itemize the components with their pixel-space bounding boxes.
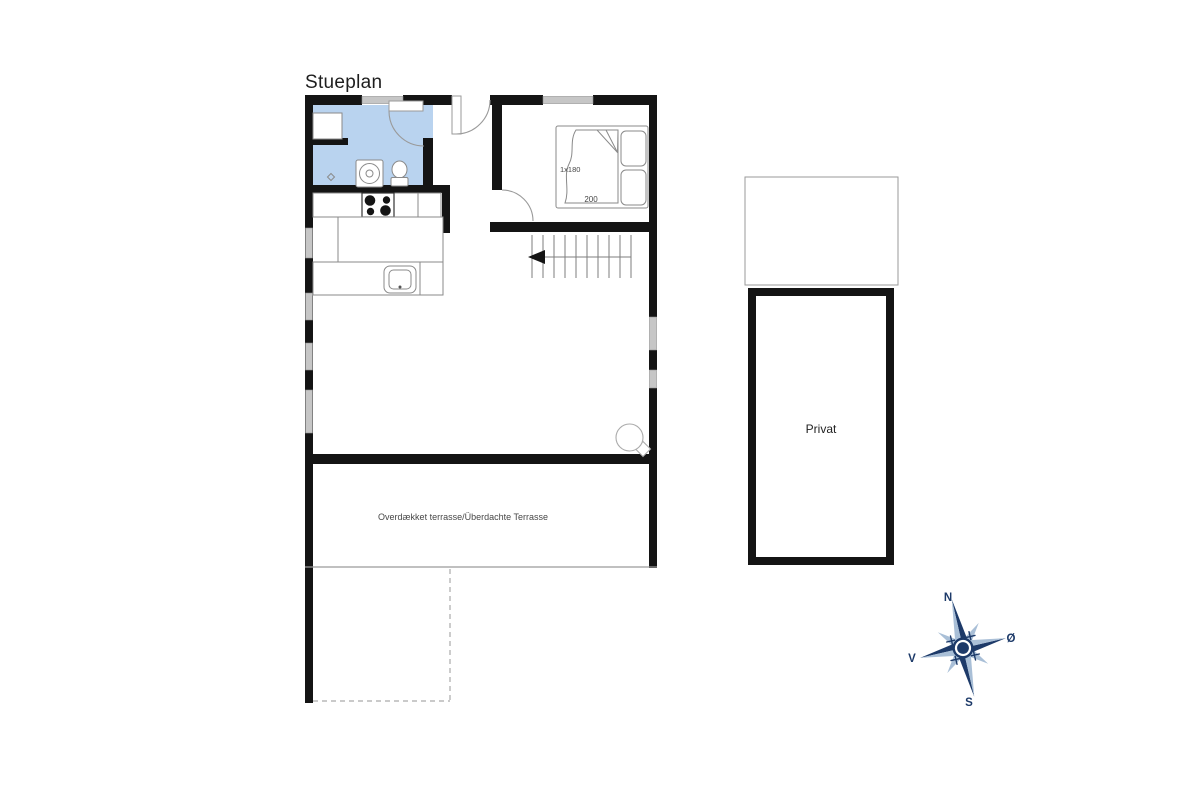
outbuilding-label: Privat	[806, 422, 837, 436]
floorplan-page: Stueplan	[0, 0, 1200, 800]
wall-segment	[649, 388, 657, 568]
terrace-label: Overdækket terrasse/Überdachte Terrasse	[378, 512, 548, 522]
covered-terrace: Overdækket terrasse/Überdachte Terrasse	[305, 512, 657, 701]
burner	[365, 195, 376, 206]
compass-label-east: Ø	[1007, 633, 1016, 645]
wall-segment	[492, 105, 502, 190]
window	[650, 317, 657, 350]
sink-basin	[356, 160, 383, 187]
wall-segment	[593, 95, 657, 105]
bed-width-label: 1x180	[560, 165, 580, 174]
wood-stove-icon	[616, 424, 651, 457]
wall-segment	[649, 350, 657, 370]
bathroom-door-leaf	[389, 101, 423, 111]
burner	[383, 196, 390, 203]
main-building: 1x180 200 Overdækket terrasse/Überdachte…	[305, 95, 657, 703]
bathroom-door-gap	[423, 105, 433, 138]
entrance-door-leaf	[452, 96, 461, 134]
compass-rose-icon: N Ø V S	[908, 589, 1017, 709]
wall-segment	[490, 222, 657, 232]
stair-direction-arrow-icon	[528, 250, 545, 264]
toilet-bowl	[392, 161, 407, 178]
outbuilding-privat: Privat	[745, 177, 898, 561]
page-title: Stueplan	[305, 72, 382, 93]
pillow	[621, 131, 646, 166]
bedroom-door-swing	[502, 190, 533, 221]
wall-segment	[649, 95, 657, 317]
bed-icon: 1x180 200	[556, 126, 648, 208]
floorplan-drawing: Stueplan	[0, 0, 1200, 800]
window	[543, 97, 593, 104]
compass-star	[909, 589, 1017, 706]
sink-icon	[356, 160, 383, 187]
toilet-icon	[391, 161, 408, 186]
window	[306, 343, 313, 370]
compass-label-west: V	[908, 653, 916, 665]
burner	[367, 208, 374, 215]
kitchen-island	[338, 217, 443, 262]
kitchen-counter	[313, 262, 443, 295]
bed-length-label: 200	[584, 195, 598, 204]
window	[306, 293, 313, 320]
wall-segment	[490, 95, 543, 105]
wall-segment	[305, 454, 657, 464]
toilet-tank	[391, 178, 408, 187]
sink-drain	[399, 286, 402, 289]
staircase	[528, 235, 631, 278]
kitchen	[313, 193, 443, 295]
wall-segment	[423, 138, 433, 193]
window	[650, 370, 657, 388]
burner	[380, 205, 391, 216]
shower-icon	[313, 113, 342, 139]
compass-label-south: S	[965, 697, 973, 709]
stove-body	[616, 424, 643, 451]
pillow	[621, 170, 646, 205]
stove-icon	[362, 193, 394, 217]
wall-segment	[305, 95, 362, 105]
window	[306, 228, 313, 258]
outbuilding-open-area	[745, 177, 898, 285]
window	[306, 390, 313, 433]
compass-label-north: N	[944, 592, 952, 604]
